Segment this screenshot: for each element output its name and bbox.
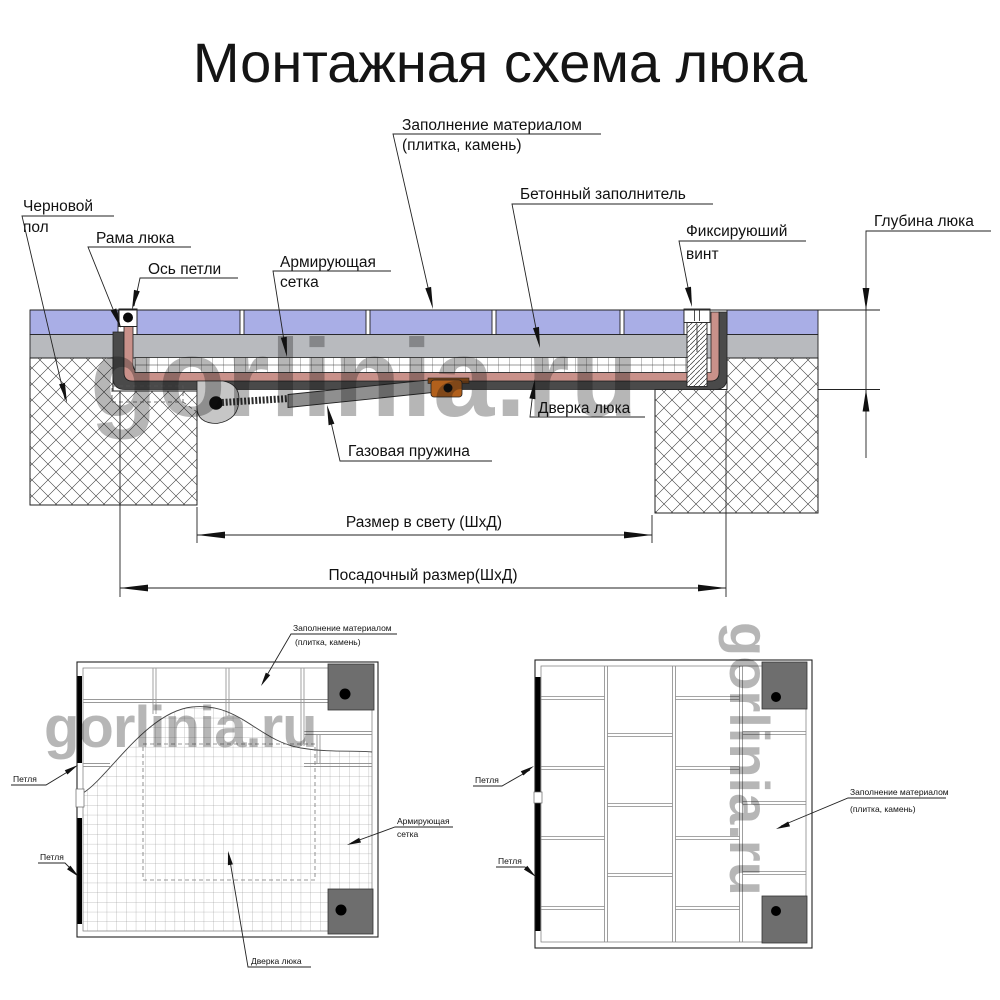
plan-right-fill-text-2: (плитка, камень) bbox=[850, 804, 916, 814]
plan-right-label-hinge-bottom: Петля bbox=[496, 856, 536, 877]
dim-arrow bbox=[197, 532, 225, 539]
leader-arrow bbox=[65, 765, 78, 775]
dim-arrow bbox=[863, 288, 870, 310]
dim-arrow bbox=[624, 532, 652, 539]
fixing-screw-text-1: Фиксируюший bbox=[686, 223, 787, 240]
label-hinge-axis: Ось петли bbox=[132, 261, 238, 310]
dim-arrow bbox=[120, 585, 148, 592]
plan-left-hinge-bottom-text: Петля bbox=[40, 852, 64, 862]
fill-material-text-1: Заполнение материалом bbox=[402, 117, 582, 134]
label-fill-material: Заполнение материалом (плитка, камень) bbox=[393, 117, 601, 309]
plan-left-mesh-text-2: сетка bbox=[397, 829, 418, 839]
clear-size-text: Размер в свету (ШхД) bbox=[346, 514, 502, 531]
plan-right-hinge-bottom-text: Петля bbox=[498, 856, 522, 866]
hinge-axis-text: Ось петли bbox=[148, 261, 221, 278]
watermark-plan-right: gorlinia.ru bbox=[718, 622, 781, 896]
plan-left-label-hinge-bottom: Петля bbox=[38, 852, 79, 877]
page-title: Монтажная схема люка bbox=[193, 31, 808, 94]
leader-arrow bbox=[685, 287, 692, 307]
plan-left-mesh-text-1: Армирующая bbox=[397, 816, 450, 826]
plan-left-hinge-top-text: Петля bbox=[13, 774, 37, 784]
rough-floor-text-2: пол bbox=[23, 219, 49, 236]
rough-floor-text-1: Черновой bbox=[23, 198, 93, 215]
plan-right-fill-text-1: Заполнение материалом bbox=[850, 787, 949, 797]
hatch-depth-text: Глубина люка bbox=[874, 213, 974, 230]
plan-left-fill-text-1: Заполнение материалом bbox=[293, 623, 392, 633]
dimension-clear-size: Размер в свету (ШхД) bbox=[197, 507, 652, 543]
plan-left-door-text: Дверка люка bbox=[251, 956, 302, 966]
fill-material-text-2: (плитка, камень) bbox=[402, 137, 522, 154]
leader-arrow bbox=[521, 766, 534, 776]
reinforcing-mesh-text-1: Армирующая bbox=[280, 254, 376, 271]
mounting-size-text: Посадочный размер(ШхД) bbox=[328, 567, 517, 584]
reinforcing-mesh-text-2: сетка bbox=[280, 274, 319, 291]
dim-arrow bbox=[863, 390, 870, 412]
fixing-screw bbox=[684, 309, 710, 387]
plan-right-label-hinge-top: Петля bbox=[473, 766, 534, 786]
hatch-installation-diagram: Монтажная схема люка bbox=[0, 0, 1000, 1000]
label-hatch-depth: Глубина люка bbox=[818, 213, 991, 458]
leader-arrow bbox=[425, 287, 433, 309]
label-fixing-screw: Фиксируюший винт bbox=[679, 223, 806, 307]
concrete-filler-text: Бетонный заполнитель bbox=[520, 186, 686, 203]
gas-spring-text: Газовая пружина bbox=[348, 443, 470, 460]
watermark-plan-left: gorlinia.ru bbox=[44, 695, 317, 760]
hatch-frame-text: Рама люка bbox=[96, 230, 175, 247]
plan-left-fill-text-2: (плитка, камень) bbox=[295, 637, 361, 647]
leader-arrow bbox=[132, 290, 140, 310]
fixing-screw-text-2: винт bbox=[686, 246, 719, 263]
plan-right-hinge-top-text: Петля bbox=[475, 775, 499, 785]
watermark-section: gorlinia.ru bbox=[90, 317, 639, 440]
diagram-canvas: Монтажная схема люка bbox=[0, 0, 1000, 1000]
plan-left-label-hinge-top: Петля bbox=[11, 765, 78, 785]
dim-arrow bbox=[698, 585, 726, 592]
hatch-door-text: Дверка люка bbox=[538, 400, 631, 417]
